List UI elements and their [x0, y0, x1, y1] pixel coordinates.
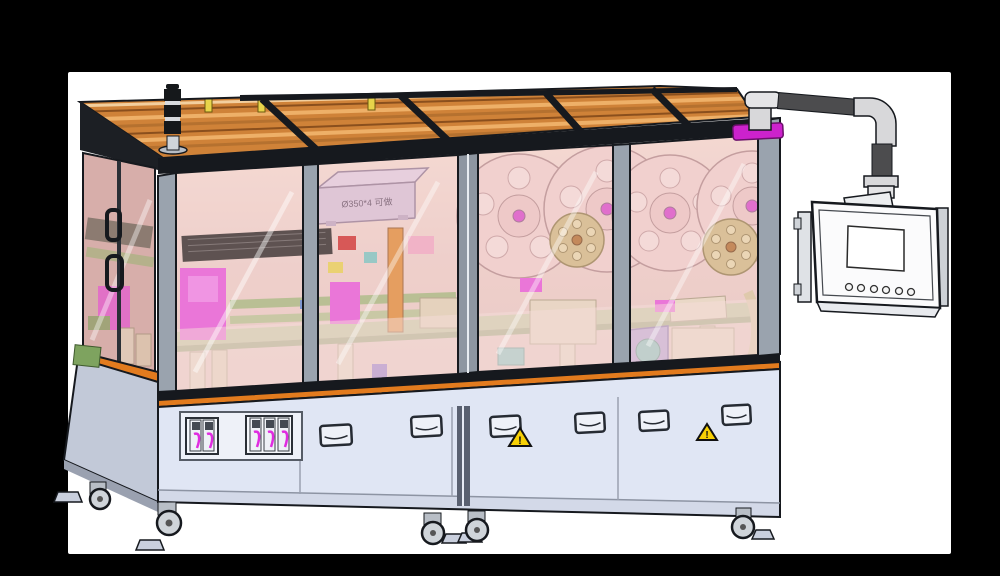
door-handle — [639, 410, 669, 430]
hmi-button — [846, 284, 853, 291]
frame-post-1 — [303, 164, 318, 383]
signal-tower-segment — [164, 105, 181, 117]
connector-module — [190, 420, 201, 451]
connector-module — [264, 418, 275, 451]
connector-module — [250, 418, 261, 451]
roof-stud — [368, 98, 375, 110]
arm-elbow-left-cap — [745, 92, 781, 108]
warning-glyph: ! — [705, 430, 708, 441]
door-handle — [575, 412, 605, 432]
frame-post-3 — [613, 144, 630, 364]
leveling-foot — [54, 492, 82, 502]
connector-recess — [180, 412, 302, 460]
hmi-screen — [847, 226, 904, 271]
roof-stud — [205, 99, 212, 112]
frame-post-right — [758, 118, 780, 356]
signal-tower-cap — [166, 84, 179, 89]
leveling-foot — [752, 530, 774, 539]
door-handle — [320, 424, 352, 446]
caster-wheel — [422, 513, 444, 544]
side-green-plate — [73, 345, 101, 368]
caster-wheel — [466, 511, 488, 541]
hmi-button — [883, 287, 890, 294]
signal-tower-stem — [167, 136, 179, 150]
door-handle — [722, 405, 751, 425]
machine-render: Ø350*4 可做 — [0, 0, 1000, 576]
connector-module — [278, 418, 289, 451]
signal-tower-segment — [164, 121, 181, 134]
leveling-foot — [136, 540, 164, 550]
door-handle — [411, 415, 442, 437]
arm-tube-vertical — [872, 144, 892, 178]
hmi-bracket-pin — [794, 284, 801, 295]
hmi-button — [871, 286, 878, 293]
connector-module — [203, 420, 214, 451]
signal-tower-ring — [165, 117, 180, 121]
frame-post-left — [158, 173, 176, 392]
hmi-button — [896, 288, 903, 295]
hmi-bracket-pin — [794, 218, 801, 229]
hmi-button — [858, 285, 865, 292]
signal-tower-ring — [165, 101, 180, 105]
warning-glyph: ! — [518, 435, 522, 447]
signal-tower-segment — [164, 89, 181, 101]
hmi-panel — [794, 202, 948, 317]
hmi-button — [908, 289, 915, 296]
